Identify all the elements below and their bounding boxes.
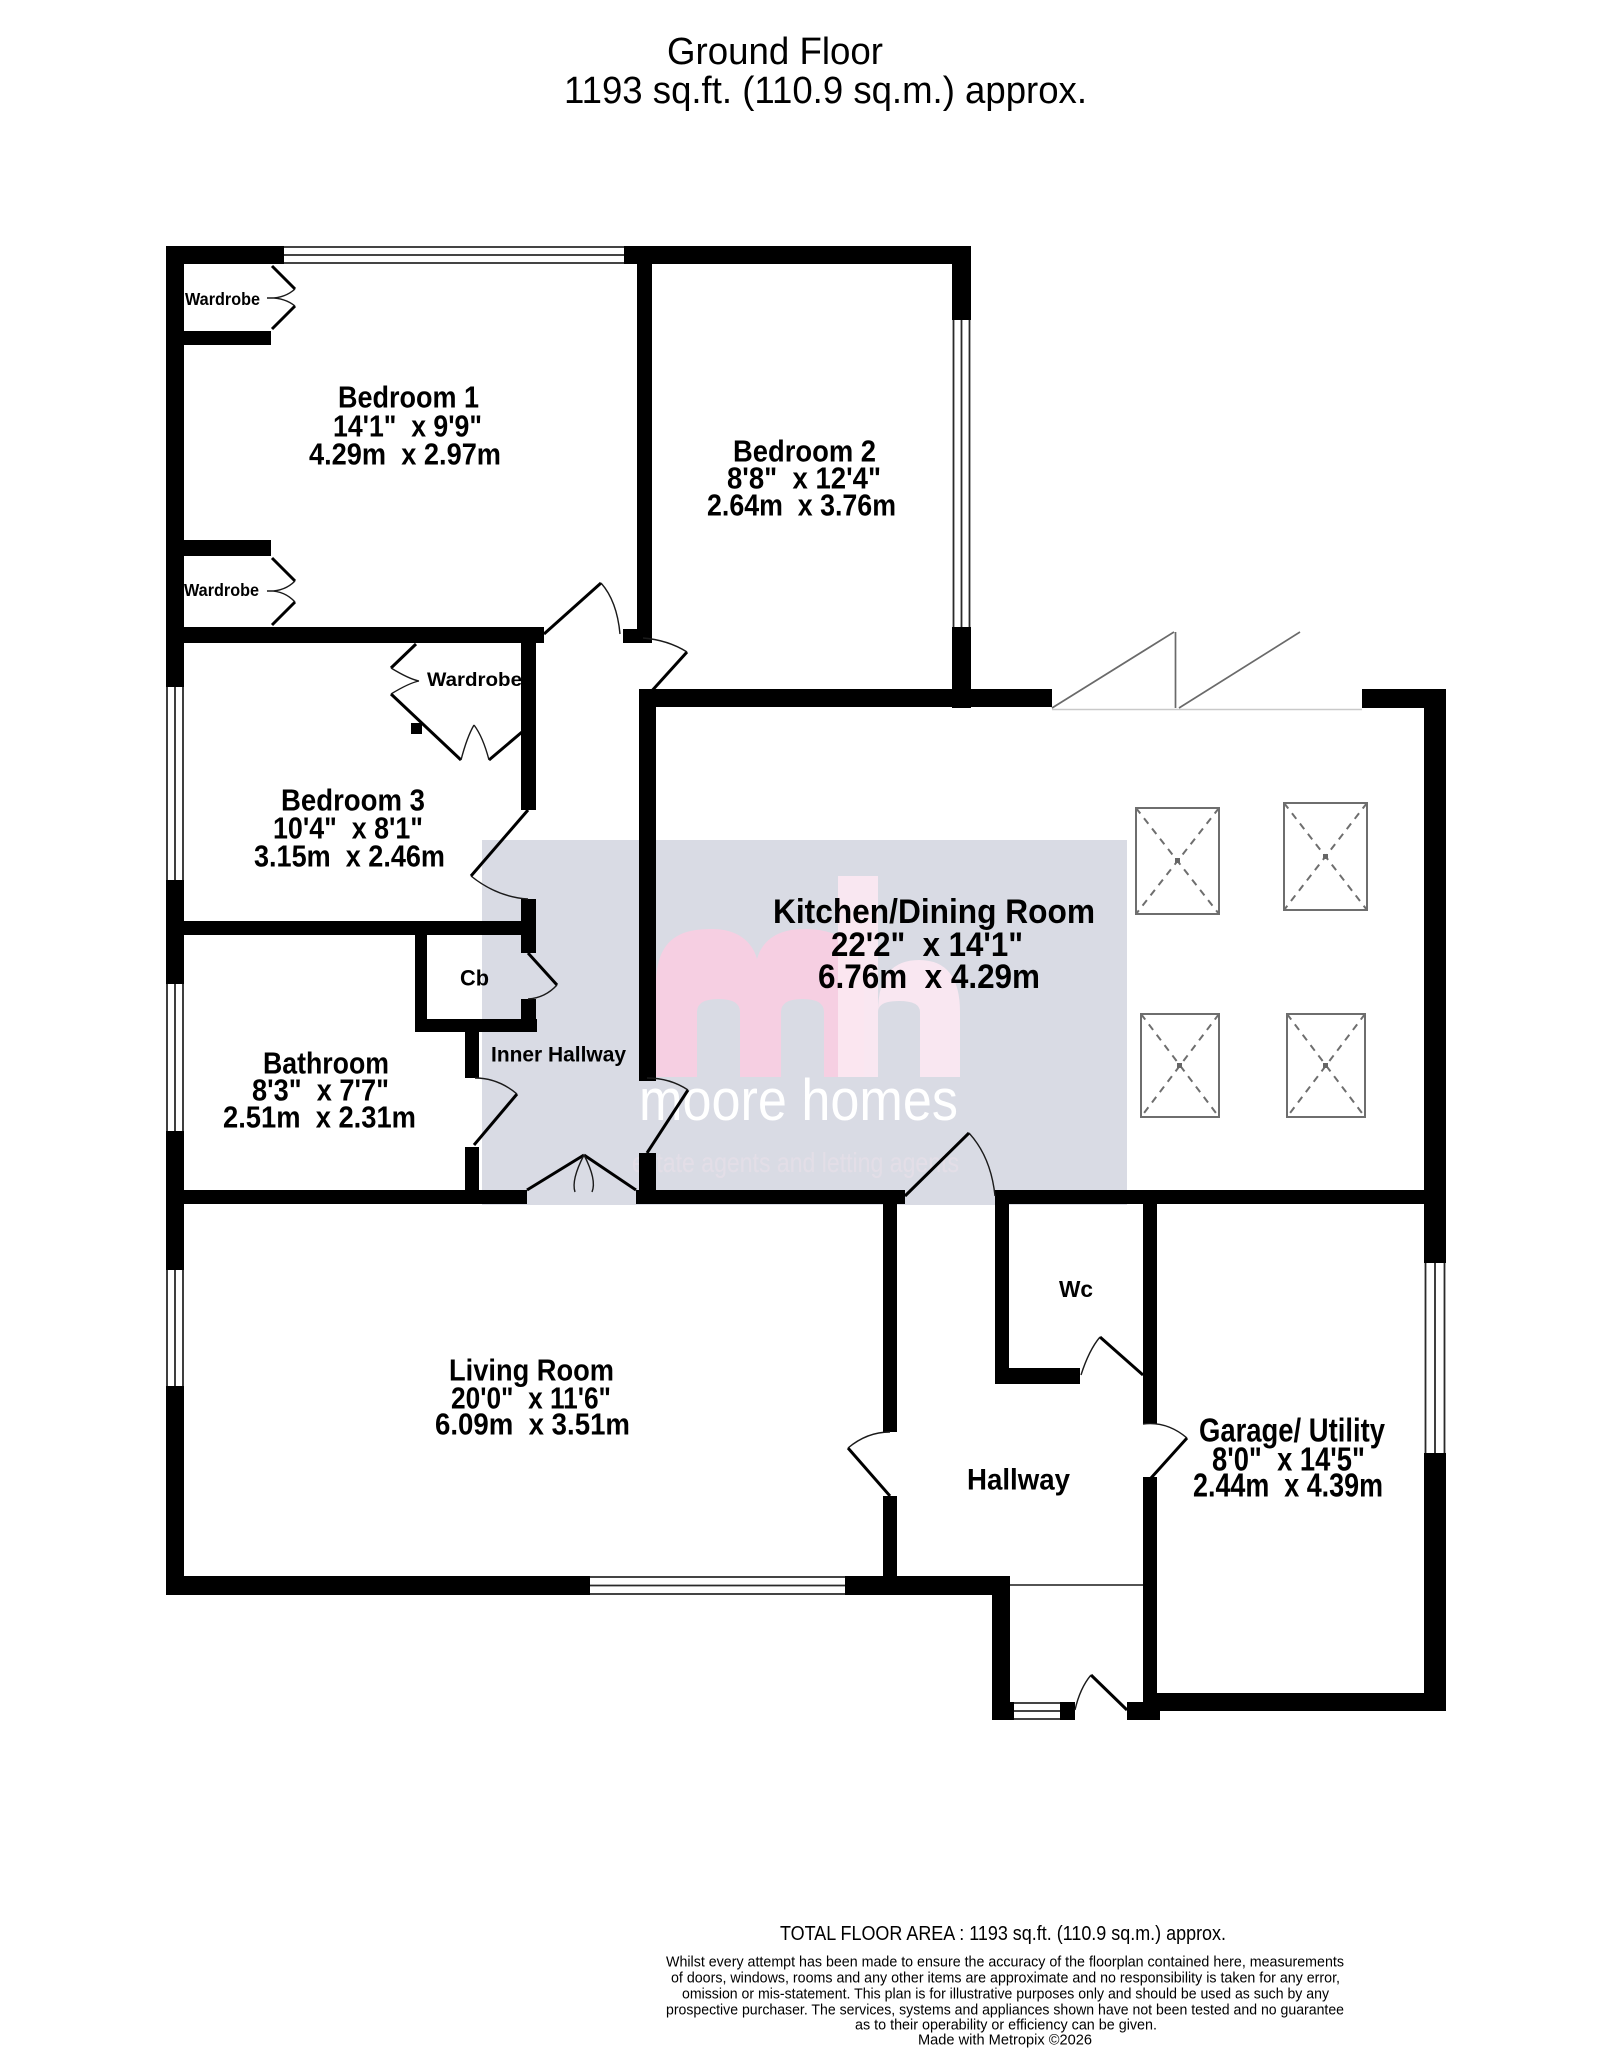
svg-text:Hallway: Hallway <box>967 1464 1070 1497</box>
svg-text:6.09m x 3.51m: 6.09m x 3.51m <box>435 1407 630 1442</box>
svg-text:Made with Metropix ©2026: Made with Metropix ©2026 <box>918 2032 1092 2048</box>
svg-text:Wc: Wc <box>1059 1276 1093 1302</box>
svg-text:4.29m x 2.97m: 4.29m x 2.97m <box>309 437 501 472</box>
svg-text:of doors, windows, rooms and a: of doors, windows, rooms and any other i… <box>671 1970 1340 1987</box>
svg-text:Whilst every attempt has been: Whilst every attempt has been made to en… <box>666 1954 1344 1971</box>
svg-text:Wardrobe: Wardrobe <box>427 669 522 691</box>
svg-text:2.51m x 2.31m: 2.51m x 2.31m <box>223 1100 416 1135</box>
svg-text:2.44m x 4.39m: 2.44m x 4.39m <box>1193 1467 1383 1504</box>
svg-text:estate agents and letting agen: estate agents and letting agents <box>632 1147 959 1178</box>
svg-text:2.64m x 3.76m: 2.64m x 3.76m <box>707 488 896 523</box>
svg-text:Cb: Cb <box>460 966 489 991</box>
svg-text:omission or mis-statement. Thi: omission or mis-statement. This plan is … <box>682 1986 1329 2003</box>
svg-text:Wardrobe: Wardrobe <box>184 580 259 600</box>
svg-text:Wardrobe: Wardrobe <box>185 289 260 309</box>
svg-text:TOTAL FLOOR AREA : 1193 sq.ft.: TOTAL FLOOR AREA : 1193 sq.ft. (110.9 sq… <box>780 1923 1226 1945</box>
svg-text:moore homes: moore homes <box>639 1068 958 1133</box>
svg-text:Ground Floor: Ground Floor <box>667 31 883 73</box>
svg-text:1193 sq.ft. (110.9 sq.m.) appr: 1193 sq.ft. (110.9 sq.m.) approx. <box>564 70 1087 112</box>
svg-text:Inner Hallway: Inner Hallway <box>491 1044 626 1067</box>
svg-text:3.15m x 2.46m: 3.15m x 2.46m <box>254 839 445 874</box>
svg-text:6.76m x 4.29m: 6.76m x 4.29m <box>818 958 1040 996</box>
